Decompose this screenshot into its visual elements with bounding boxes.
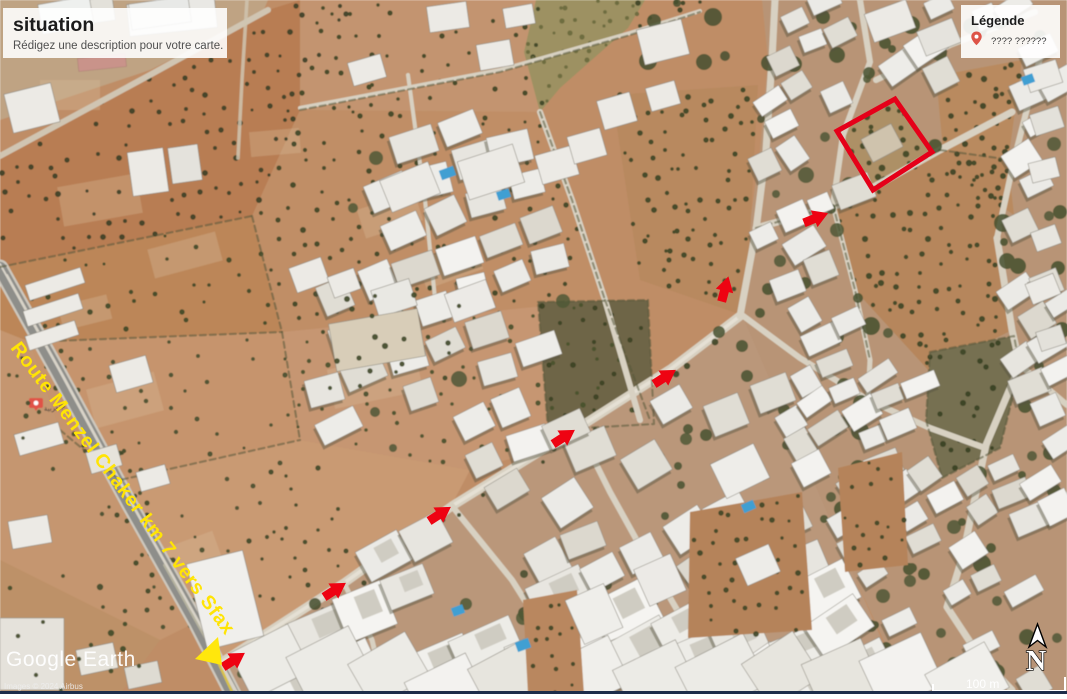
svg-text:???? ??????: ???? ?????? [991,36,1046,47]
svg-text:Google Earth: Google Earth [6,648,136,671]
svg-text:100 m: 100 m [966,677,999,691]
svg-text:situation: situation [13,14,94,36]
svg-text:Images © 2024 Airbus: Images © 2024 Airbus [4,682,83,691]
svg-text:Rédigez une description pour v: Rédigez une description pour votre carte… [13,40,223,52]
svg-text:N: N [1026,646,1046,677]
svg-text:Légende: Légende [971,13,1024,28]
